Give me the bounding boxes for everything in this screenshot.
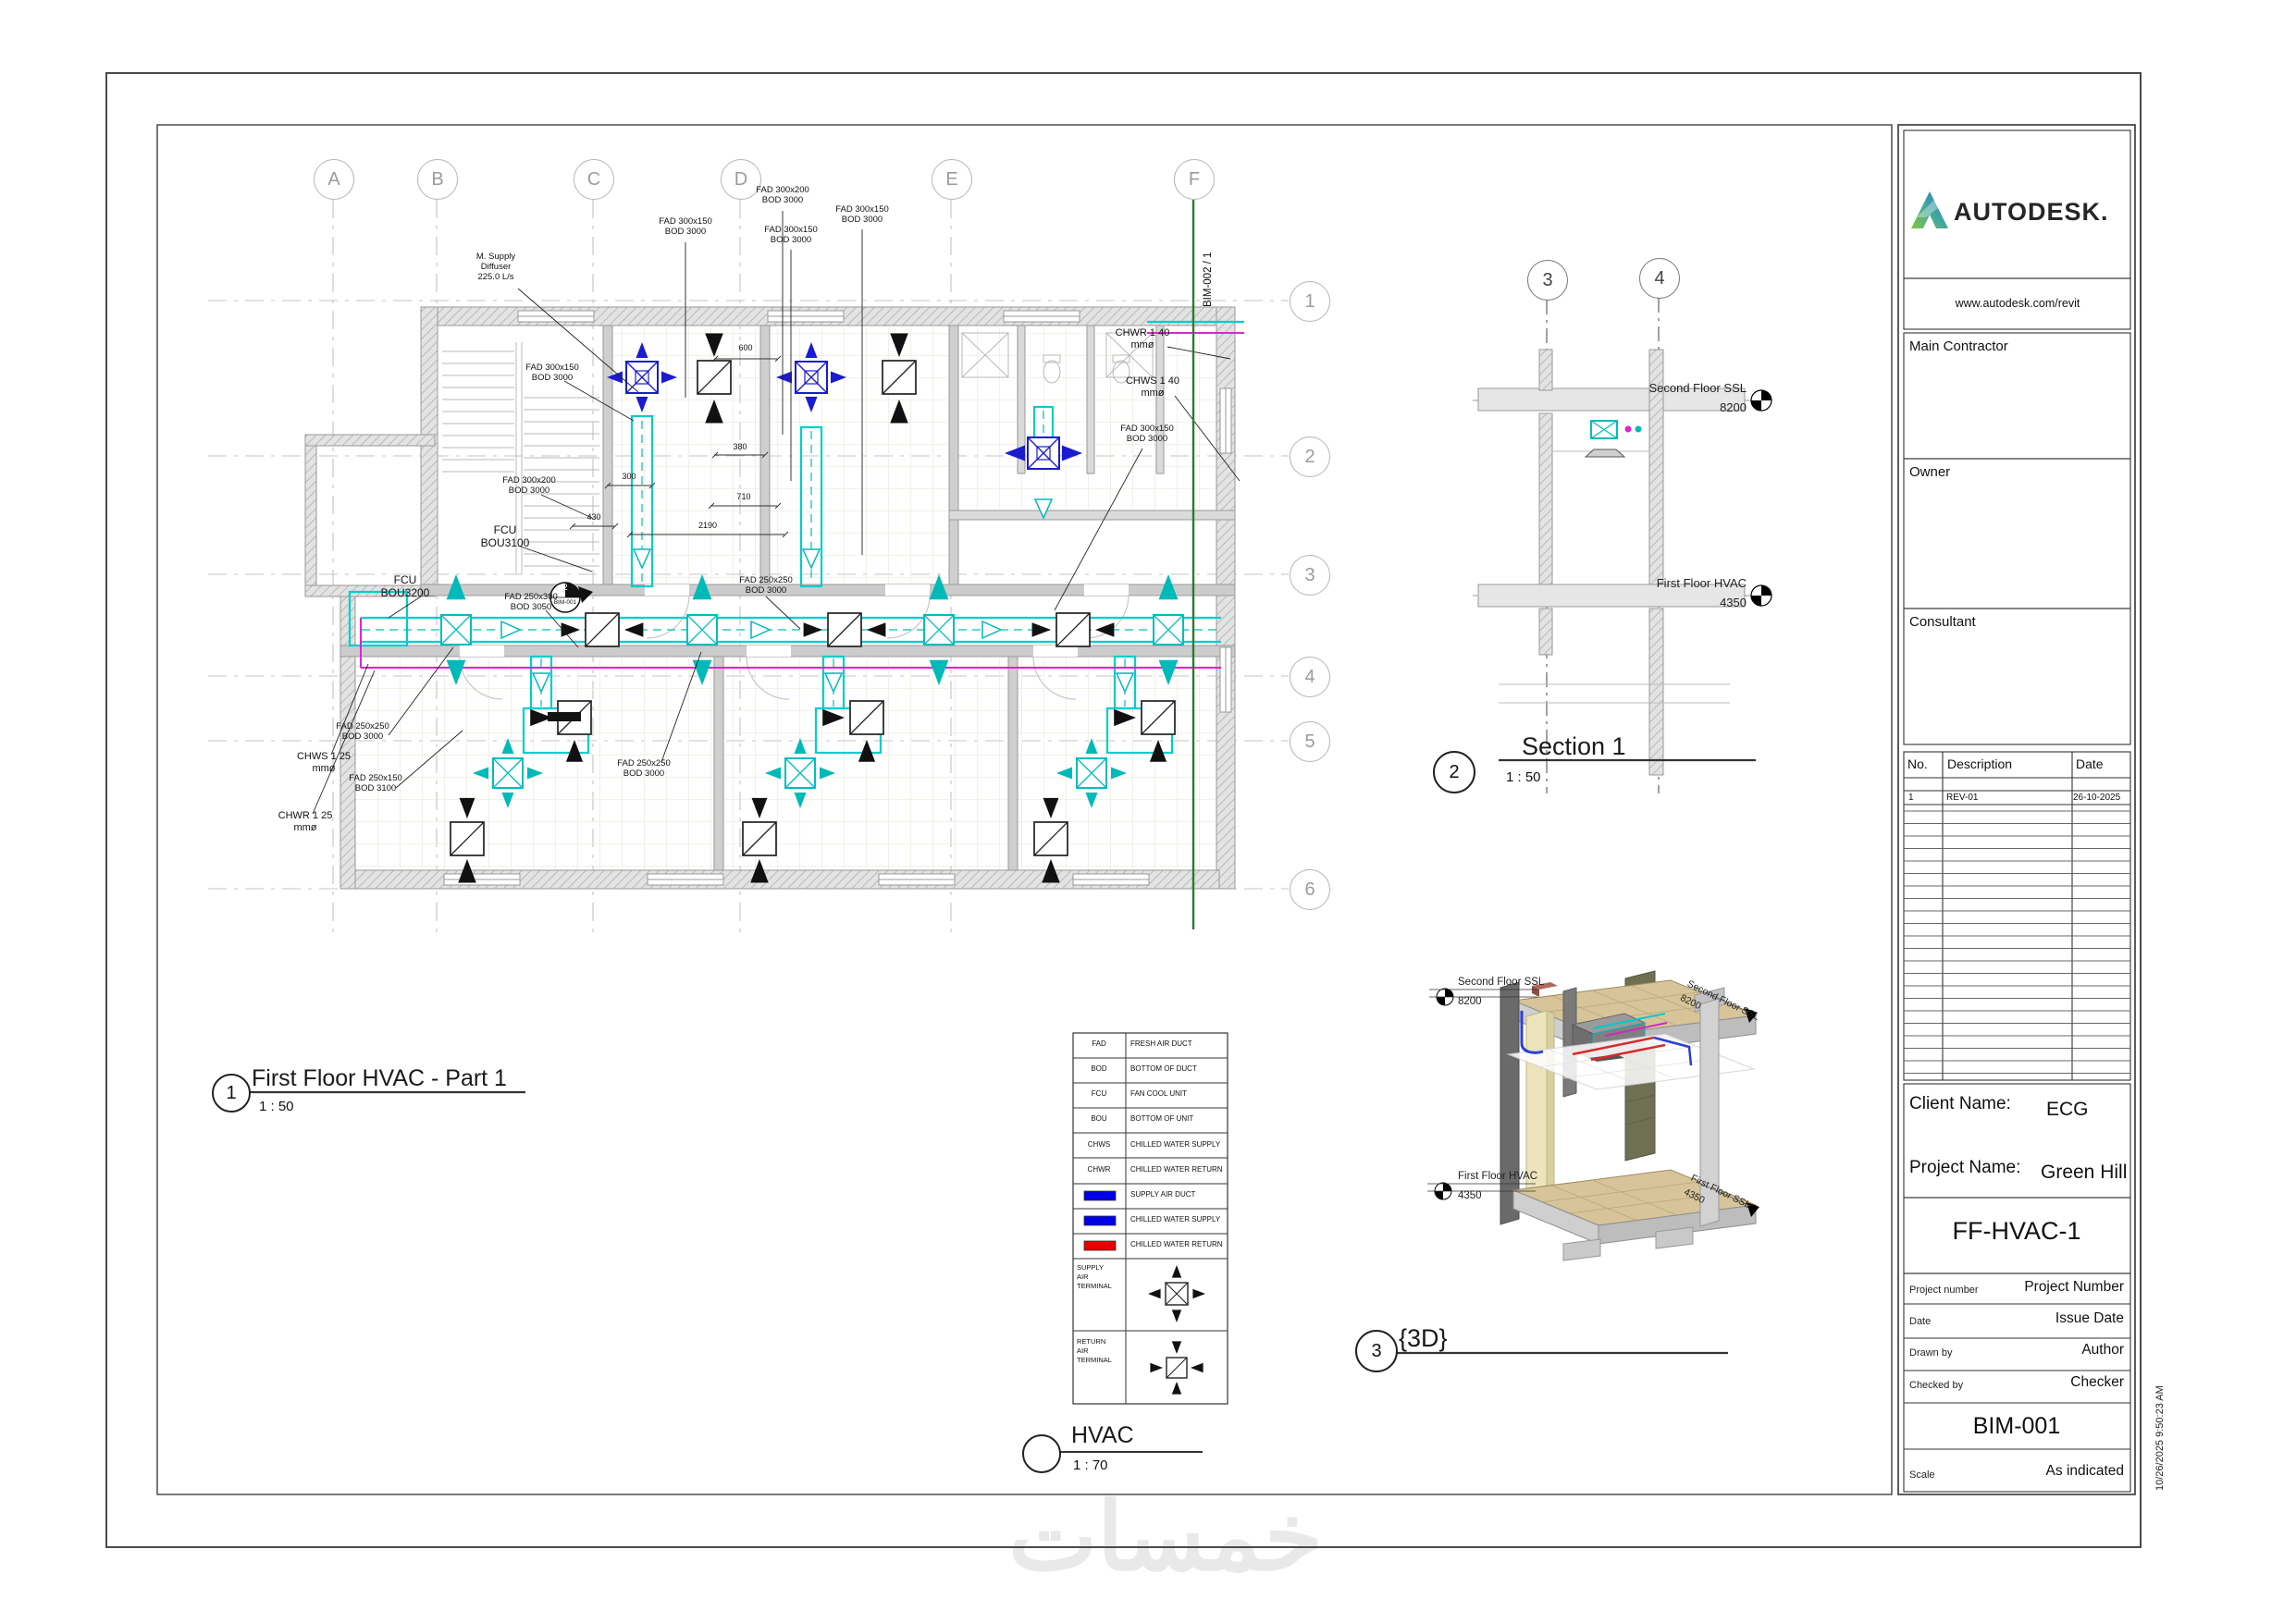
dimension: 710 bbox=[736, 492, 750, 502]
matchline-label: BIM-002 / 1 bbox=[1203, 252, 1216, 307]
3d-viewport-number: 3 bbox=[1355, 1330, 1398, 1372]
grid-bubble-2: 2 bbox=[1290, 436, 1330, 477]
rev-header-description: Description bbox=[1947, 756, 2012, 772]
owner-label: Owner bbox=[1909, 464, 1950, 481]
section-title: Section 1 bbox=[1522, 732, 1626, 762]
3d-title: {3D} bbox=[1399, 1324, 1448, 1354]
legend-abbr: RETURN AIR TERMINAL bbox=[1077, 1337, 1112, 1364]
grid-bubble-b: B bbox=[417, 159, 458, 200]
duct-tag: FAD 300x150 BOD 3000 bbox=[659, 216, 712, 237]
grid-bubble-3: 3 bbox=[1290, 555, 1330, 596]
fcu-tag: FCU BOU3200 bbox=[381, 573, 430, 599]
grid-bubble-6: 6 bbox=[1290, 869, 1330, 910]
checked-by-label: Checked by bbox=[1909, 1380, 1963, 1392]
pipe-tag: CHWS 1 25 mmø bbox=[297, 751, 351, 775]
client-label: Client Name: bbox=[1909, 1094, 2011, 1114]
duct-tag: FAD 300x150 BOD 3000 bbox=[764, 225, 818, 245]
main-contractor-label: Main Contractor bbox=[1909, 338, 2008, 355]
duct-tag: FAD 300x200 BOD 3000 bbox=[756, 185, 809, 205]
legend-desc: SUPPLY AIR DUCT bbox=[1130, 1190, 1195, 1199]
legend-desc: CHILLED WATER SUPPLY bbox=[1130, 1140, 1220, 1149]
project-number-value: Project Number bbox=[2024, 1279, 2124, 1296]
rev-row-no: 1 bbox=[1908, 793, 1914, 804]
legend-abbr: BOU bbox=[1091, 1114, 1106, 1123]
grid-bubble-c: C bbox=[574, 159, 614, 200]
duct-tag: FAD 250x250 BOD 3000 bbox=[739, 575, 793, 596]
consultant-label: Consultant bbox=[1909, 614, 1976, 631]
grid-bubble-f: F bbox=[1174, 159, 1215, 200]
grid-bubble-a: A bbox=[314, 159, 354, 200]
legend-abbr: SUPPLY AIR TERMINAL bbox=[1077, 1263, 1112, 1290]
section-graphics bbox=[1473, 298, 1771, 793]
dimension: 300 bbox=[622, 472, 636, 482]
legend-abbr: FCU bbox=[1092, 1089, 1106, 1098]
legend-title: HVAC bbox=[1071, 1422, 1134, 1450]
pipe-tag: CHWR 1 25 mmø bbox=[278, 810, 333, 834]
checked-by-value: Checker bbox=[2070, 1374, 2124, 1391]
duct-tag: FAD 300x150 BOD 3000 bbox=[525, 363, 579, 383]
fcu-tag: FCU BOU3100 bbox=[481, 523, 530, 549]
dimension: 380 bbox=[733, 442, 747, 452]
diffuser-tag: M. Supply Diffuser 225.0 L/s bbox=[476, 252, 515, 283]
project-number-label: Project number bbox=[1909, 1285, 1979, 1297]
dimension: 600 bbox=[738, 343, 752, 353]
legend-desc: CHILLED WATER SUPPLY bbox=[1130, 1215, 1220, 1223]
rev-row-date: 26-10-2025 bbox=[2073, 793, 2120, 804]
duct-tag: FAD 300x200 BOD 3000 bbox=[502, 475, 556, 496]
pipe-tag: CHWR 1 40 mmø bbox=[1116, 327, 1170, 351]
section-level-2: First Floor HVAC 4350 bbox=[1573, 573, 1747, 612]
three-d-graphics bbox=[1395, 971, 1759, 1353]
scale-label: Scale bbox=[1909, 1469, 1935, 1482]
project-value: Green Hill bbox=[2041, 1162, 2127, 1185]
legend-abbr: CHWR bbox=[1088, 1165, 1111, 1174]
plan-title: First Floor HVAC - Part 1 bbox=[252, 1065, 507, 1093]
section-marker-number: 2 bbox=[562, 583, 567, 593]
autodesk-logo-text: AUTODESK. bbox=[1954, 198, 2109, 227]
duct-tag: FAD 300x150 BOD 3000 bbox=[835, 204, 889, 225]
section-grid-bubble-4: 4 bbox=[1639, 258, 1680, 299]
print-stamp: 10/26/2025 9:50:23 AM bbox=[2154, 1385, 2166, 1491]
scale-value: As indicated bbox=[2046, 1463, 2124, 1480]
duct-tag: FAD 250x300 BOD 3050 bbox=[504, 592, 558, 612]
drawn-by-label: Drawn by bbox=[1909, 1347, 1952, 1359]
legend-desc: BOTTOM OF UNIT bbox=[1130, 1114, 1193, 1123]
section-viewport-number: 2 bbox=[1433, 751, 1475, 793]
3d-level-left-2: First Floor HVAC 4350 bbox=[1458, 1167, 1569, 1206]
website-text: www.autodesk.com/revit bbox=[1956, 297, 2080, 311]
legend-viewport-number bbox=[1022, 1434, 1061, 1473]
legend-desc: FAN COOL UNIT bbox=[1130, 1089, 1187, 1098]
duct-tag: FAD 250x250 BOD 3000 bbox=[336, 721, 389, 742]
dimension: 2190 bbox=[698, 521, 717, 531]
date-value: Issue Date bbox=[2055, 1310, 2124, 1327]
sheet-number: BIM-001 bbox=[1973, 1413, 2060, 1441]
duct-tag: FAD 300x150 BOD 3000 bbox=[1120, 424, 1174, 444]
grid-bubble-4: 4 bbox=[1290, 657, 1330, 697]
rev-row-description: REV-01 bbox=[1946, 793, 1978, 804]
section-scale: 1 : 50 bbox=[1506, 769, 1541, 786]
drawn-by-value: Author bbox=[2081, 1342, 2124, 1359]
legend-abbr: FAD bbox=[1092, 1039, 1106, 1048]
plan-graphics bbox=[208, 200, 1289, 932]
3d-level-left-1: Second Floor SSL 8200 bbox=[1458, 973, 1569, 1012]
section-marker-sheet: BIM-001 bbox=[554, 599, 577, 607]
grid-bubble-e: E bbox=[932, 159, 972, 200]
legend-desc: CHILLED WATER RETURN bbox=[1130, 1240, 1223, 1248]
legend-desc: FRESH AIR DUCT bbox=[1130, 1039, 1192, 1048]
duct-tag: FAD 250x150 BOD 3100 bbox=[349, 773, 402, 793]
grid-bubble-5: 5 bbox=[1290, 721, 1330, 762]
rev-header-no: No. bbox=[1907, 756, 1928, 772]
rev-header-date: Date bbox=[2076, 756, 2104, 772]
section-level-1: Second Floor SSL 8200 bbox=[1573, 378, 1747, 417]
duct-tag: FAD 250x250 BOD 3000 bbox=[617, 758, 671, 779]
legend-abbr: CHWS bbox=[1088, 1140, 1110, 1149]
legend-desc: CHILLED WATER RETURN bbox=[1130, 1165, 1223, 1174]
date-label: Date bbox=[1909, 1316, 1931, 1328]
legend-scale: 1 : 70 bbox=[1073, 1457, 1108, 1474]
client-value: ECG bbox=[2046, 1099, 2089, 1122]
plan-scale: 1 : 50 bbox=[259, 1099, 294, 1115]
grid-bubble-1: 1 bbox=[1290, 281, 1330, 322]
project-label: Project Name: bbox=[1909, 1158, 2020, 1178]
drawing-sheet: خمسات bbox=[0, 0, 2296, 1623]
pipe-tag: CHWS 1 40 mmø bbox=[1126, 375, 1179, 400]
section-grid-bubble-3: 3 bbox=[1527, 260, 1568, 301]
plan-viewport-number: 1 bbox=[212, 1074, 251, 1113]
dimension: 430 bbox=[586, 512, 600, 523]
legend-abbr: BOD bbox=[1091, 1064, 1106, 1073]
sheet-name: FF-HVAC-1 bbox=[1953, 1217, 2081, 1247]
legend-desc: BOTTOM OF DUCT bbox=[1130, 1064, 1197, 1073]
